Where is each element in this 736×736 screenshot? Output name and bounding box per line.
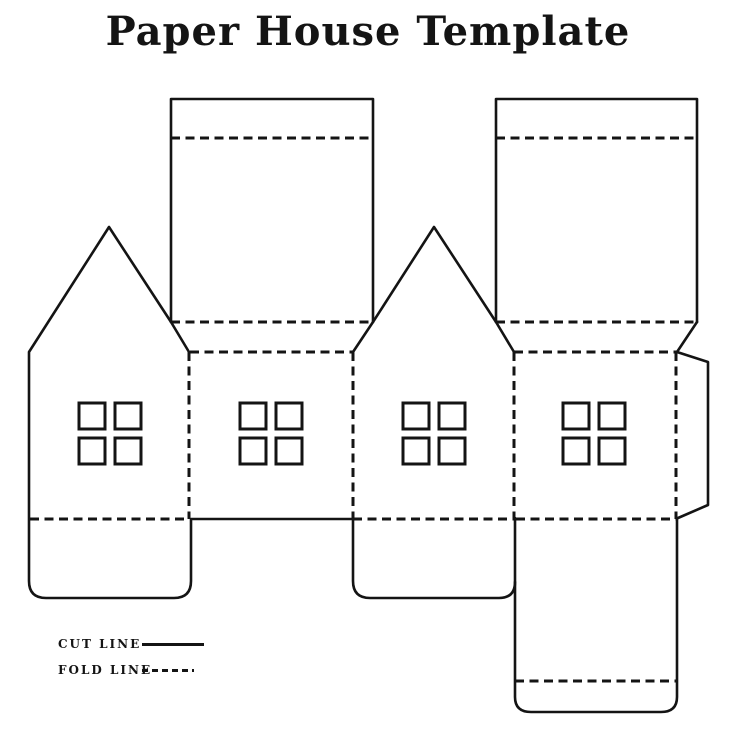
legend-row-fold: FOLD LINE	[58, 657, 204, 683]
fold-line-label: FOLD LINE	[58, 663, 142, 677]
window-gable-left	[79, 403, 141, 464]
roof-right-eave-edge	[677, 322, 697, 352]
legend-row-cut: CUT LINE	[58, 631, 204, 657]
template-diagram	[0, 0, 736, 736]
base-panel-outline	[515, 518, 677, 712]
cut-line-sample-icon	[142, 643, 204, 646]
legend: CUT LINE FOLD LINE	[58, 631, 204, 683]
roof-panel-left-outline	[171, 99, 373, 322]
roof-panel-right-outline	[496, 99, 697, 322]
window-wall-1	[240, 403, 302, 464]
window-wall-2	[563, 403, 625, 464]
fold-line-sample-icon	[142, 669, 194, 672]
cut-line-label: CUT LINE	[58, 637, 142, 651]
page: Paper House Template	[0, 0, 736, 736]
window-gable-right	[403, 403, 465, 464]
glue-tab-outline	[677, 352, 708, 518]
gable-end-right-outline	[353, 227, 514, 352]
gable-end-left-outline	[29, 227, 515, 598]
